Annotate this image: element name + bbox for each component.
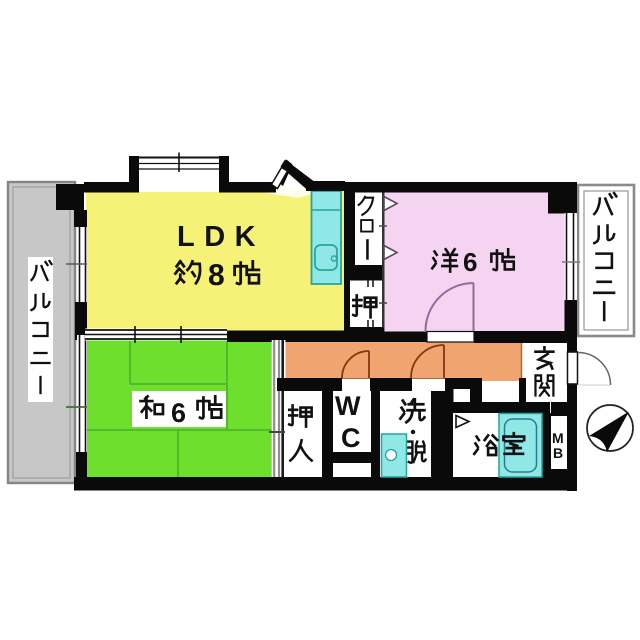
svg-text:W: W bbox=[335, 391, 361, 421]
svg-text:6: 6 bbox=[171, 398, 186, 428]
svg-text:C: C bbox=[341, 423, 361, 453]
svg-text:B: B bbox=[553, 445, 563, 461]
svg-text:M: M bbox=[552, 430, 564, 446]
svg-text:LDK: LDK bbox=[177, 221, 265, 253]
svg-text:8: 8 bbox=[208, 259, 225, 292]
svg-text:6: 6 bbox=[463, 247, 477, 277]
